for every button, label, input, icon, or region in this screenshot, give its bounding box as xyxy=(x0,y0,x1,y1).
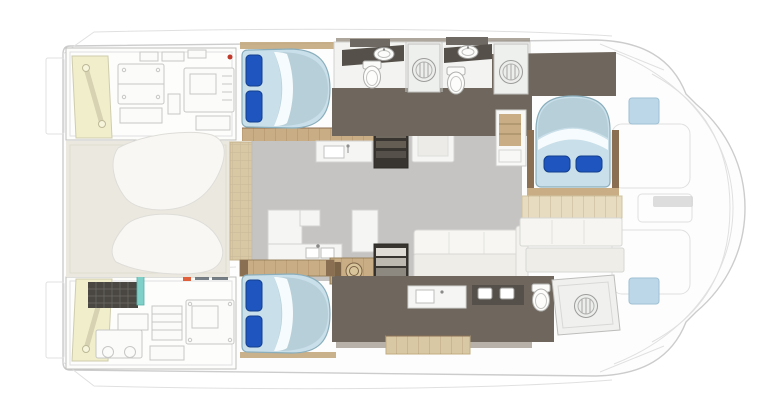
starboard-engine-room xyxy=(66,267,236,369)
shower-drain-icon xyxy=(575,295,598,318)
deck-plan-page xyxy=(0,0,767,417)
deck-plan-drawing xyxy=(0,0,767,417)
toilet-icon xyxy=(532,284,550,311)
shower-drain-icon xyxy=(500,61,523,84)
pillow xyxy=(576,156,602,172)
toilet-icon xyxy=(447,67,465,94)
mirror-cabinet xyxy=(446,37,488,45)
aft-cockpit xyxy=(66,132,230,277)
deck-hatch xyxy=(629,98,659,124)
toilet-icon xyxy=(363,61,381,88)
swim-platform-port xyxy=(46,58,64,134)
deck-hatch xyxy=(629,278,659,304)
pillow xyxy=(544,156,570,172)
desk xyxy=(386,336,470,354)
mirror-cabinet xyxy=(350,39,390,47)
sink-vanity-dark xyxy=(472,285,524,305)
faucet-icon xyxy=(316,244,320,248)
galley-sink xyxy=(324,146,344,158)
shower-drain-icon xyxy=(413,59,436,82)
forward-seating xyxy=(520,196,624,272)
berth-foot-trim xyxy=(527,188,619,196)
swim-platform-starboard xyxy=(46,282,64,358)
engine-room-marker xyxy=(228,55,233,60)
shower-stall xyxy=(552,275,620,335)
bow-cleat xyxy=(653,196,693,207)
faucet-icon xyxy=(440,290,443,293)
sink-icon xyxy=(458,46,478,59)
sink-icon xyxy=(478,288,492,299)
sink-icon xyxy=(500,288,514,299)
double-berth xyxy=(242,49,330,128)
bed-post xyxy=(612,130,619,190)
battery-panel xyxy=(88,282,138,308)
engine-room-accent xyxy=(137,275,144,305)
bed-post xyxy=(527,130,534,190)
galley-sink xyxy=(306,248,319,258)
galley-sink xyxy=(321,248,334,258)
double-berth xyxy=(242,274,330,353)
double-berth xyxy=(536,96,610,187)
sink-icon xyxy=(374,48,394,61)
starboard-aft-cabin xyxy=(242,274,330,353)
